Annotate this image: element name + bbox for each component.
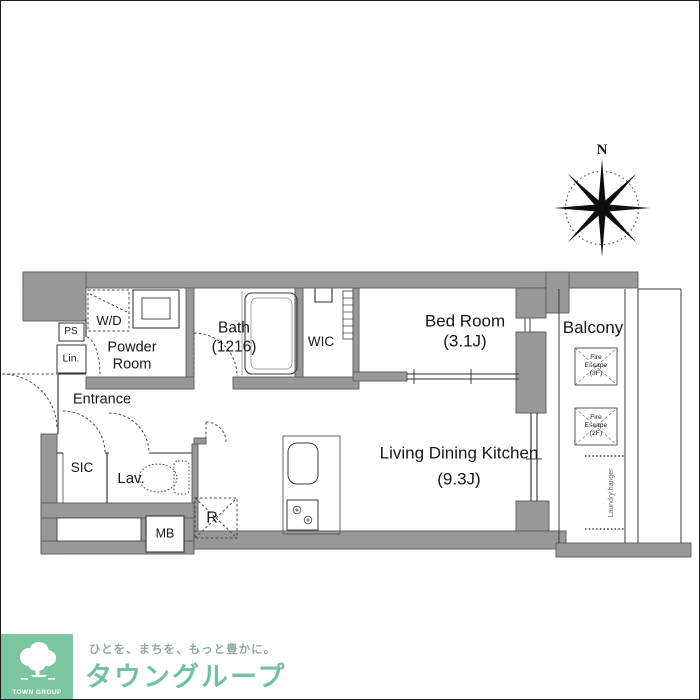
logo-text: TOWN GROUP (12, 689, 61, 696)
wic-shelf-hatch (343, 291, 353, 339)
room-label-mb: MB (156, 527, 175, 542)
room-label-entrance: Entrance (73, 391, 131, 408)
room-label-balcony: Balcony (563, 318, 623, 338)
floorplan-page: W/D PS Lin. Powder Room Bath (1216) WIC … (0, 0, 700, 700)
room-label-lav: Lav. (117, 470, 144, 488)
room-label-ps: PS (64, 326, 77, 338)
room-label-wic: WIC (308, 334, 334, 350)
fire-escape-2f-label: Fire Escape (2F) (585, 414, 608, 438)
town-group-logo: TOWN GROUP (1, 634, 73, 699)
brand-company-name: タウングループ (85, 655, 286, 694)
room-label-lin: Lin. (63, 353, 80, 366)
floor-plan-drawing (1, 1, 699, 699)
room-label-bath: Bath (1216) (212, 319, 257, 356)
compass-icon (554, 159, 650, 257)
laundry-hanger-label: Laundry hanger (608, 468, 616, 517)
room-label-sic: SIC (71, 460, 94, 476)
room-label-ldk: Living Dining Kitchen (9.3J) (380, 441, 539, 494)
room-label-bedroom: Bed Room (3.1J) (425, 312, 505, 353)
stove-burners (293, 506, 312, 524)
room-label-powder-room: Powder Room (107, 340, 156, 375)
room-label-refrigerator: R (206, 508, 218, 527)
room-label-wd: W/D (96, 313, 121, 329)
fire-escape-3f-label: Fire Escape (3F) (585, 354, 608, 378)
compass-north-label: N (597, 141, 608, 159)
